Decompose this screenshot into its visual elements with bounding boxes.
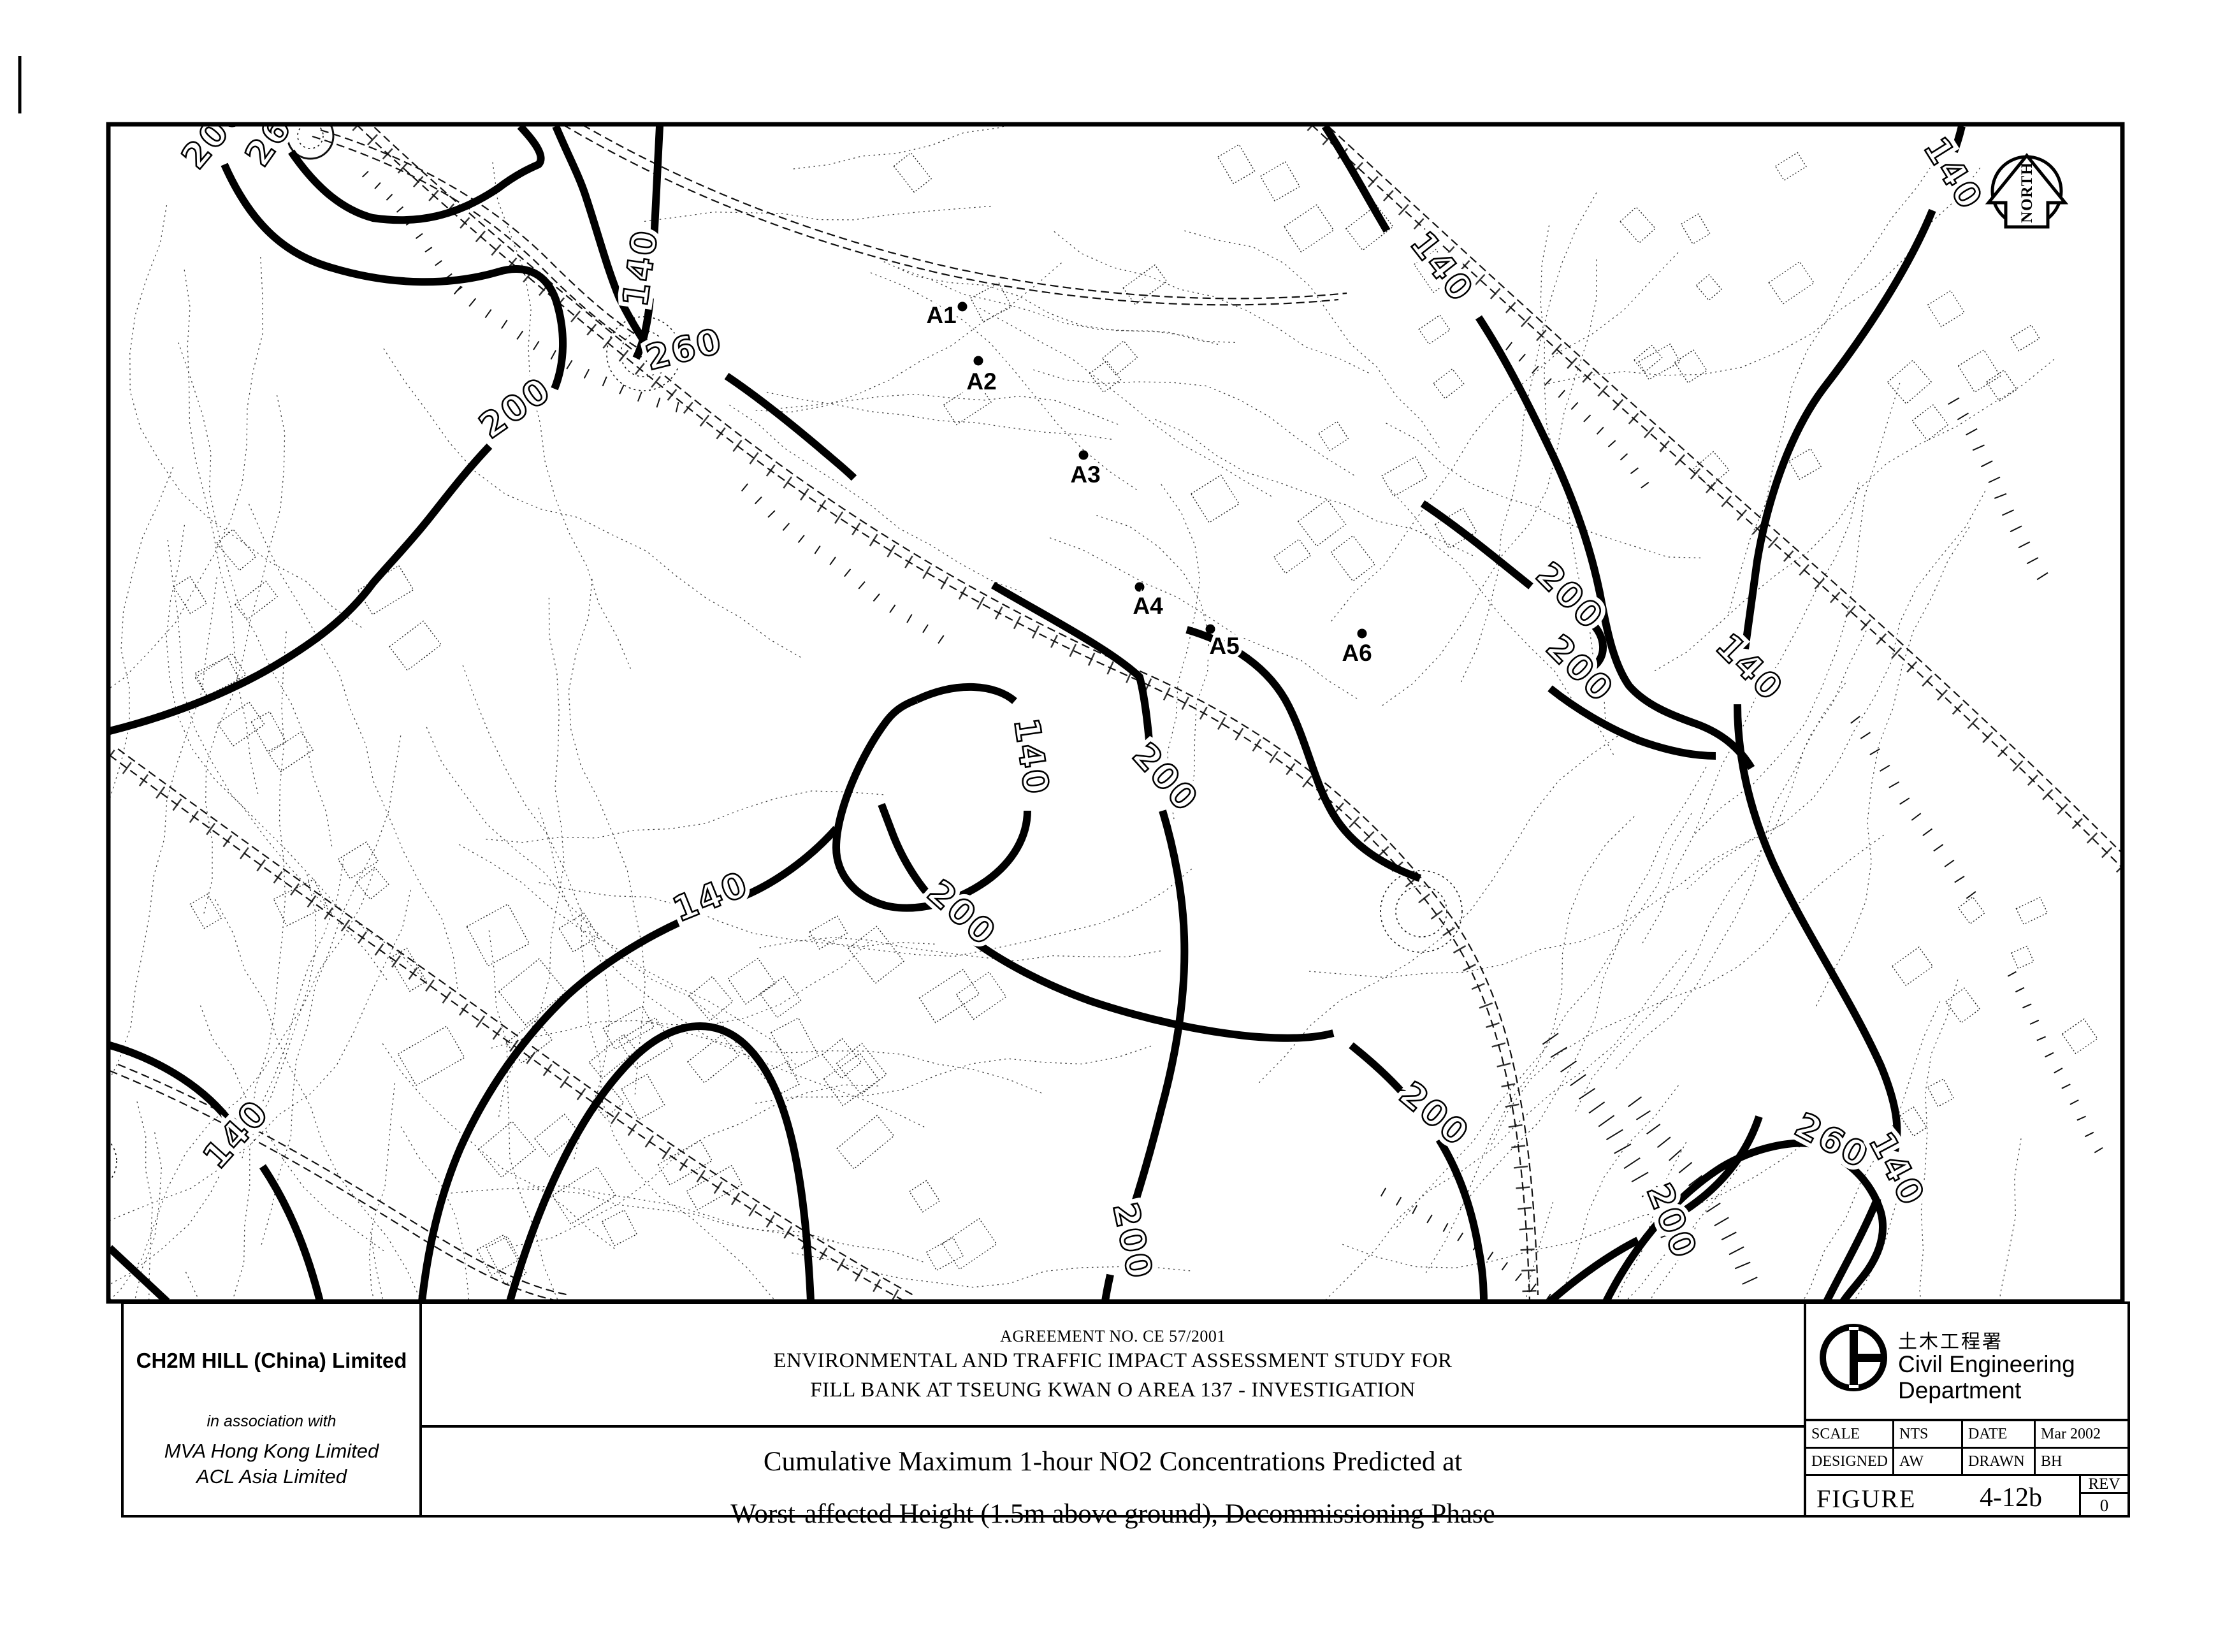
north-arrow-label: NORTH bbox=[2018, 162, 2036, 223]
contour-label: 140 bbox=[1708, 626, 1792, 709]
contour-label: 140 bbox=[1916, 130, 1991, 217]
receptor-dot-A6 bbox=[1358, 629, 1367, 639]
contour-label: 140 bbox=[615, 227, 665, 309]
designed-label: DESIGNED bbox=[1806, 1449, 1894, 1474]
association-text: in association with bbox=[124, 1412, 419, 1431]
receptor-dot-A2 bbox=[974, 356, 983, 366]
contour-label: 200 bbox=[920, 872, 1004, 953]
ced-logo-icon bbox=[1818, 1322, 1889, 1393]
contour-label: 140 bbox=[667, 864, 754, 930]
contour-label: 200 bbox=[1392, 1074, 1477, 1155]
receptor-label-A1: A1 bbox=[926, 302, 956, 328]
project-title-cell: AGREEMENT NO. CE 57/2001 ENVIRONMENTAL A… bbox=[422, 1304, 1804, 1515]
contour-label: 200 bbox=[174, 91, 255, 177]
revision-value: 0 bbox=[2081, 1496, 2127, 1516]
receptor-label-A4: A4 bbox=[1133, 593, 1163, 619]
contour-label: 140 bbox=[1402, 224, 1482, 310]
figure-page: 2002002602602002002602601401401401401401… bbox=[0, 0, 2225, 1652]
contour-label: 140 bbox=[195, 1092, 277, 1177]
contour-label: 260 bbox=[1788, 1105, 1876, 1177]
figure-caption: Cumulative Maximum 1-hour NO2 Concentrat… bbox=[422, 1428, 1804, 1532]
study-title-line1: ENVIRONMENTAL AND TRAFFIC IMPACT ASSESSM… bbox=[422, 1346, 1804, 1375]
contour-label: 140 bbox=[1006, 716, 1057, 798]
receptor-label-A3: A3 bbox=[1070, 461, 1100, 488]
company-name: CH2M HILL (China) Limited bbox=[124, 1349, 419, 1373]
department-name-line1: Civil Engineering bbox=[1898, 1351, 2075, 1377]
scale-value: NTS bbox=[1894, 1421, 1963, 1447]
partner-company-1: MVA Hong Kong Limited bbox=[124, 1438, 419, 1464]
receptor-label-A6: A6 bbox=[1342, 640, 1372, 666]
study-title-line2: FILL BANK AT TSEUNG KWAN O AREA 137 - IN… bbox=[422, 1375, 1804, 1405]
title-block: CH2M HILL (China) Limited in association… bbox=[121, 1301, 2130, 1518]
project-header: AGREEMENT NO. CE 57/2001 ENVIRONMENTAL A… bbox=[422, 1304, 1804, 1428]
contour-label: 200 bbox=[472, 369, 558, 446]
figure-title-line1: Cumulative Maximum 1-hour NO2 Concentrat… bbox=[422, 1444, 1804, 1480]
north-arrow: NORTH bbox=[1989, 156, 2065, 227]
consultant-cell: CH2M HILL (China) Limited in association… bbox=[124, 1304, 422, 1515]
date-label: DATE bbox=[1963, 1421, 2036, 1447]
contour-label: 200 bbox=[1125, 735, 1207, 820]
revision-label: REV bbox=[2081, 1474, 2127, 1494]
figure-label: FIGURE bbox=[1816, 1484, 1916, 1514]
table-row-designed-drawn: DESIGNED AW DRAWN BH bbox=[1806, 1449, 2127, 1476]
department-header: 土木工程署 Civil Engineering Department bbox=[1806, 1304, 2127, 1419]
partner-company-2: ACL Asia Limited bbox=[124, 1464, 419, 1489]
drawn-label: DRAWN bbox=[1963, 1449, 2036, 1474]
receptor-markers: A1A1A2A2A3A3A4A4A5A5A6A6 bbox=[926, 302, 1372, 667]
figure-title-line2: Worst-affected Height (1.5m above ground… bbox=[422, 1496, 1804, 1532]
department-name-line2: Department bbox=[1898, 1377, 2075, 1403]
contour-label: 260 bbox=[237, 87, 314, 173]
figure-number: 4-12b bbox=[1980, 1482, 2042, 1513]
designed-value: AW bbox=[1894, 1449, 1963, 1474]
table-row-figure: FIGURE 4-12b REV 0 bbox=[1806, 1476, 2127, 1518]
department-name-english: Civil Engineering Department bbox=[1898, 1351, 2075, 1403]
contour-label: 260 bbox=[642, 321, 727, 379]
agreement-number: AGREEMENT NO. CE 57/2001 bbox=[422, 1327, 1804, 1346]
no2-contour-lines bbox=[110, 126, 1962, 1301]
table-row-scale-date: SCALE NTS DATE Mar 2002 bbox=[1806, 1421, 2127, 1449]
contour-label: 200 bbox=[1105, 1199, 1161, 1283]
scale-label: SCALE bbox=[1806, 1421, 1894, 1447]
revision-box: REV 0 bbox=[2079, 1474, 2127, 1518]
receptor-dot-A4 bbox=[1135, 583, 1145, 592]
date-value: Mar 2002 bbox=[2036, 1421, 2127, 1447]
contour-label: 200 bbox=[1528, 554, 1612, 638]
department-name-chinese: 土木工程署 bbox=[1898, 1326, 2003, 1354]
receptor-label-A2: A2 bbox=[966, 368, 996, 395]
receptor-dot-A1 bbox=[958, 302, 968, 312]
receptor-label-A5: A5 bbox=[1209, 633, 1239, 659]
contour-labels: 2002002602602002002602601401401401401401… bbox=[174, 87, 1991, 1283]
drawing-info-table: SCALE NTS DATE Mar 2002 DESIGNED AW DRAW… bbox=[1806, 1419, 2127, 1518]
receptor-dot-A3 bbox=[1079, 451, 1089, 460]
drawn-value: BH bbox=[2036, 1449, 2127, 1474]
department-cell: 土木工程署 Civil Engineering Department SCALE… bbox=[1804, 1304, 2127, 1515]
